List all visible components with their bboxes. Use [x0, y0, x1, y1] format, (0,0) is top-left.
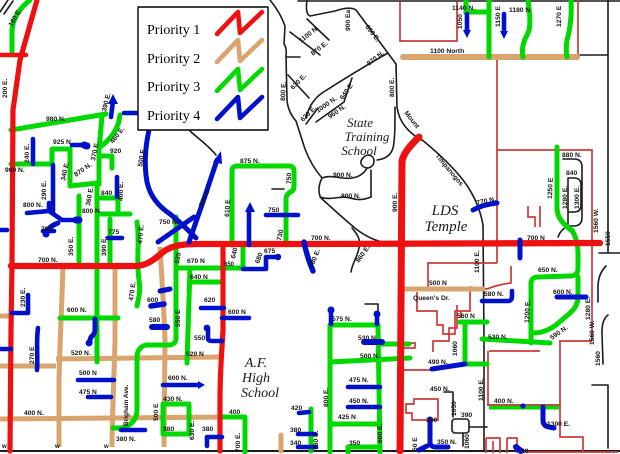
svg-text:1200 E.: 1200 E. — [524, 300, 532, 323]
svg-text:1150 E: 1150 E — [495, 6, 502, 27]
svg-text:30: 30 — [521, 448, 529, 454]
svg-text:Priority 2: Priority 2 — [147, 52, 200, 67]
svg-text:490 N.: 490 N. — [428, 359, 448, 366]
svg-text:840: 840 — [101, 190, 112, 197]
svg-text:1560 W.: 1560 W. — [593, 208, 600, 233]
svg-text:840: 840 — [566, 170, 577, 177]
svg-text:900 E.: 900 E. — [392, 193, 399, 212]
svg-text:400 N.: 400 N. — [494, 398, 514, 405]
svg-text:530 N.: 530 N. — [358, 335, 378, 342]
svg-text:1280 E.: 1280 E. — [562, 186, 569, 209]
svg-text:700 N.: 700 N. — [311, 235, 331, 242]
svg-text:600: 600 — [147, 297, 158, 304]
svg-text:800 E.: 800 E. — [323, 388, 330, 407]
svg-text:450 N.: 450 N. — [349, 398, 369, 405]
svg-text:420: 420 — [291, 405, 302, 412]
svg-text:350 E.: 350 E. — [68, 237, 75, 256]
svg-text:w: w — [54, 444, 60, 450]
svg-text:600 E.: 600 E. — [377, 424, 384, 443]
svg-text:880 N.: 880 N. — [562, 152, 582, 159]
svg-text:200 E.: 200 E. — [2, 79, 9, 98]
svg-text:520 N: 520 N — [186, 351, 204, 358]
svg-text:1560: 1560 — [595, 351, 602, 366]
svg-text:230 E.: 230 E. — [20, 288, 27, 307]
svg-text:1300 E.: 1300 E. — [574, 186, 581, 209]
svg-text:1270 E: 1270 E — [556, 5, 563, 27]
svg-text:380: 380 — [426, 417, 437, 424]
svg-text:580 N.: 580 N. — [484, 291, 504, 298]
svg-text:1550: 1550 — [605, 231, 612, 246]
svg-text:1560 W.: 1560 W. — [589, 320, 596, 345]
svg-text:400 E.: 400 E. — [118, 182, 125, 201]
svg-text:630 E.: 630 E. — [189, 421, 196, 440]
svg-text:670 N: 670 N — [187, 258, 205, 265]
svg-text:600 N: 600 N — [228, 309, 246, 316]
svg-text:1100 E.: 1100 E. — [478, 378, 485, 401]
svg-text:530 N.: 530 N. — [488, 334, 508, 341]
svg-text:575 N.: 575 N. — [332, 316, 352, 323]
svg-text:390 E.: 390 E. — [101, 237, 108, 256]
svg-text:560 N: 560 N — [457, 313, 475, 320]
svg-text:600 N.: 600 N. — [553, 289, 573, 296]
svg-text:400 N.: 400 N. — [24, 410, 44, 417]
svg-text:270 E: 270 E — [29, 346, 36, 364]
svg-text:School: School — [341, 143, 377, 158]
svg-text:750: 750 — [286, 173, 293, 184]
svg-text:550 E: 550 E — [175, 309, 182, 327]
svg-text:1280 E.: 1280 E. — [585, 297, 592, 320]
svg-text:50 E: 50 E — [412, 437, 419, 451]
svg-text:Brigham Ave.: Brigham Ave. — [123, 384, 130, 426]
svg-text:520 N.: 520 N. — [71, 350, 91, 357]
svg-text:640 N: 640 N — [190, 274, 208, 281]
svg-text:800 N.: 800 N. — [341, 193, 361, 200]
svg-text:290 E.: 290 E. — [41, 181, 48, 200]
svg-text:LDS: LDS — [431, 203, 459, 219]
svg-text:800 N.: 800 N. — [82, 208, 102, 215]
svg-text:610 E: 610 E — [224, 199, 232, 217]
svg-text:700 N: 700 N — [527, 235, 545, 242]
svg-text:1060: 1060 — [464, 434, 471, 449]
svg-text:475 N: 475 N — [79, 389, 97, 396]
svg-text:700 N.: 700 N. — [38, 257, 58, 264]
svg-text:675: 675 — [264, 248, 275, 255]
svg-text:380 N.: 380 N. — [116, 436, 136, 443]
svg-text:750 N.: 750 N. — [159, 219, 179, 226]
svg-text:240 E.: 240 E. — [24, 144, 31, 163]
svg-text:School: School — [241, 386, 279, 401]
svg-text:380: 380 — [290, 427, 301, 434]
svg-text:450 N.: 450 N. — [430, 386, 450, 393]
svg-text:875 N.: 875 N. — [240, 158, 260, 165]
svg-text:800 N.: 800 N. — [23, 202, 43, 209]
svg-text:Temple: Temple — [425, 219, 468, 235]
svg-text:350 N.: 350 N. — [437, 439, 457, 446]
svg-text:600 N.: 600 N. — [168, 375, 188, 382]
svg-text:620: 620 — [204, 297, 215, 304]
svg-text:1100 E.: 1100 E. — [474, 250, 481, 273]
svg-text:650 N.: 650 N. — [538, 267, 558, 274]
svg-text:1060: 1060 — [452, 341, 459, 356]
svg-text:925 N: 925 N — [53, 139, 71, 146]
svg-text:1050: 1050 — [457, 14, 464, 29]
svg-text:Priority 1: Priority 1 — [147, 23, 200, 38]
svg-text:Training: Training — [345, 129, 390, 144]
svg-text:500 E: 500 E — [153, 403, 160, 421]
svg-text:500 N: 500 N — [429, 280, 447, 287]
svg-text:A.F.: A.F. — [244, 356, 267, 371]
svg-text:w: w — [103, 444, 109, 450]
svg-text:800 E.: 800 E. — [280, 81, 288, 101]
svg-text:1140 N.: 1140 N. — [452, 5, 475, 12]
svg-text:475 N.: 475 N. — [349, 377, 369, 384]
svg-text:1180 N: 1180 N — [509, 7, 530, 14]
svg-text:780: 780 — [41, 226, 52, 233]
svg-text:775: 775 — [108, 229, 119, 236]
svg-text:900 N.: 900 N. — [333, 172, 353, 179]
svg-text:390: 390 — [461, 412, 472, 419]
svg-text:1100 North: 1100 North — [430, 48, 464, 55]
svg-text:900 Ea: 900 Ea — [345, 10, 352, 31]
svg-text:430 N.: 430 N. — [163, 396, 183, 403]
svg-text:760 E.: 760 E. — [313, 431, 320, 450]
svg-text:980 N.: 980 N. — [46, 116, 66, 123]
svg-text:400: 400 — [229, 409, 240, 416]
svg-text:1250 E: 1250 E — [547, 177, 555, 199]
svg-text:Priority 3: Priority 3 — [147, 80, 200, 95]
svg-text:550: 550 — [194, 335, 205, 342]
svg-text:w: w — [1, 444, 7, 450]
svg-text:900 N.: 900 N. — [5, 167, 25, 174]
svg-text:1300 E.: 1300 E. — [547, 421, 570, 428]
svg-text:700 E.: 700 E. — [235, 433, 242, 452]
svg-text:380: 380 — [163, 426, 174, 433]
svg-text:580: 580 — [149, 317, 160, 324]
svg-text:High: High — [241, 371, 270, 386]
svg-text:340: 340 — [290, 440, 301, 447]
svg-text:500 N.: 500 N. — [360, 353, 380, 360]
svg-text:650: 650 — [224, 262, 235, 268]
svg-text:Priority 4: Priority 4 — [147, 109, 200, 124]
svg-text:425 N: 425 N — [338, 414, 356, 421]
svg-text:600 N.: 600 N. — [67, 307, 87, 314]
svg-text:800 E.: 800 E. — [389, 78, 396, 97]
svg-text:Queen's Dr.: Queen's Dr. — [413, 295, 450, 302]
svg-text:500 N: 500 N — [79, 370, 97, 377]
svg-text:920: 920 — [110, 148, 121, 155]
svg-text:380: 380 — [202, 426, 213, 433]
svg-text:750: 750 — [268, 207, 279, 214]
svg-text:350: 350 — [349, 440, 360, 447]
svg-text:1050: 1050 — [451, 401, 458, 416]
svg-text:State: State — [347, 115, 373, 130]
